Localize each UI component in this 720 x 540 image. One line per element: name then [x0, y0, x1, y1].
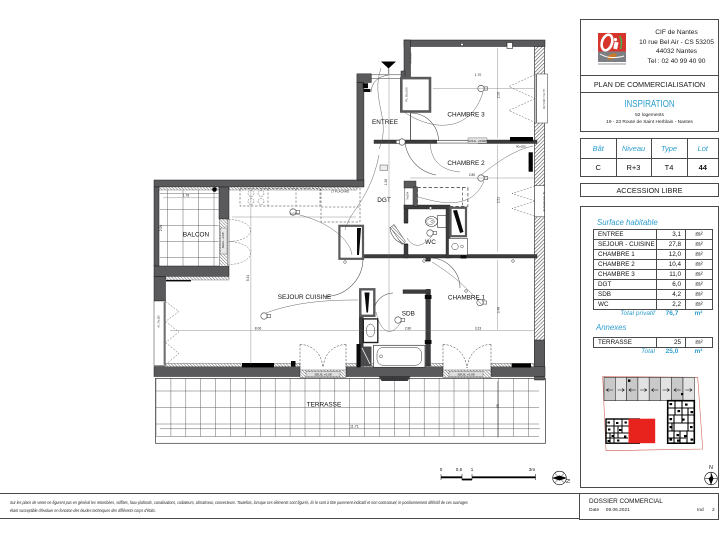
- svg-text:TERRASSE: TERRASSE: [307, 402, 341, 409]
- svg-text:3.23: 3.23: [475, 326, 482, 330]
- svg-text:CHAMBRE 1: CHAMBRE 1: [448, 295, 486, 302]
- svg-text:2.51: 2.51: [497, 197, 501, 204]
- svg-text:74x204: 74x204: [406, 191, 410, 200]
- svg-text:0: 0: [440, 467, 443, 472]
- svg-text:25: 25: [496, 404, 500, 408]
- svg-text:2.05: 2.05: [497, 92, 501, 99]
- svg-text:4.07: 4.07: [290, 212, 297, 216]
- svg-text:SEJOUR CUISINE: SEJOUR CUISINE: [278, 294, 332, 301]
- svg-text:CHAMBRE 3: CHAMBRE 3: [447, 112, 485, 119]
- svg-text:SEUIL +0.08: SEUIL +0.08: [221, 232, 225, 248]
- svg-text:SDB: SDB: [402, 311, 415, 318]
- svg-text:SEUIL +0.08: SEUIL +0.08: [315, 373, 332, 377]
- svg-text:AL 76x165: AL 76x165: [157, 315, 161, 328]
- svg-text:1.38: 1.38: [384, 179, 388, 186]
- svg-text:8.06: 8.06: [255, 326, 262, 330]
- svg-text:N: N: [709, 465, 713, 471]
- svg-text:3m: 3m: [529, 467, 536, 472]
- svg-text:BALCON: BALCON: [183, 232, 210, 239]
- svg-text:5.34: 5.34: [246, 275, 250, 282]
- svg-text:N: N: [566, 479, 572, 483]
- svg-text:2.80: 2.80: [469, 173, 476, 177]
- svg-text:0,5: 0,5: [456, 467, 463, 472]
- svg-text:AL 76 x 165 H 95: AL 76 x 165 H 95: [542, 192, 546, 213]
- svg-text:3.48: 3.48: [497, 307, 501, 314]
- svg-text:90x200: 90x200: [516, 145, 526, 149]
- svg-text:1: 1: [471, 467, 474, 472]
- svg-text:1.70: 1.70: [475, 73, 482, 77]
- svg-text:AL 76 x 165 H 95: AL 76 x 165 H 95: [542, 89, 546, 110]
- svg-text:LT PLACARD: LT PLACARD: [331, 190, 350, 194]
- svg-text:CHAMBRE 2: CHAMBRE 2: [447, 160, 485, 167]
- svg-text:11.71: 11.71: [350, 424, 359, 428]
- svg-text:1.78: 1.78: [183, 194, 190, 198]
- svg-text:COUL. +030M: COUL. +030M: [468, 139, 487, 143]
- svg-text:AL 60x60: AL 60x60: [409, 52, 413, 63]
- svg-text:SEUIL +0.08: SEUIL +0.08: [458, 373, 475, 377]
- svg-text:DGT: DGT: [377, 197, 391, 204]
- svg-text:PL 60x190: PL 60x190: [405, 87, 409, 102]
- svg-text:2.00: 2.00: [159, 225, 163, 232]
- svg-text:2.80: 2.80: [405, 326, 412, 330]
- svg-text:ENTREE: ENTREE: [372, 119, 398, 126]
- svg-text:WC: WC: [425, 239, 436, 246]
